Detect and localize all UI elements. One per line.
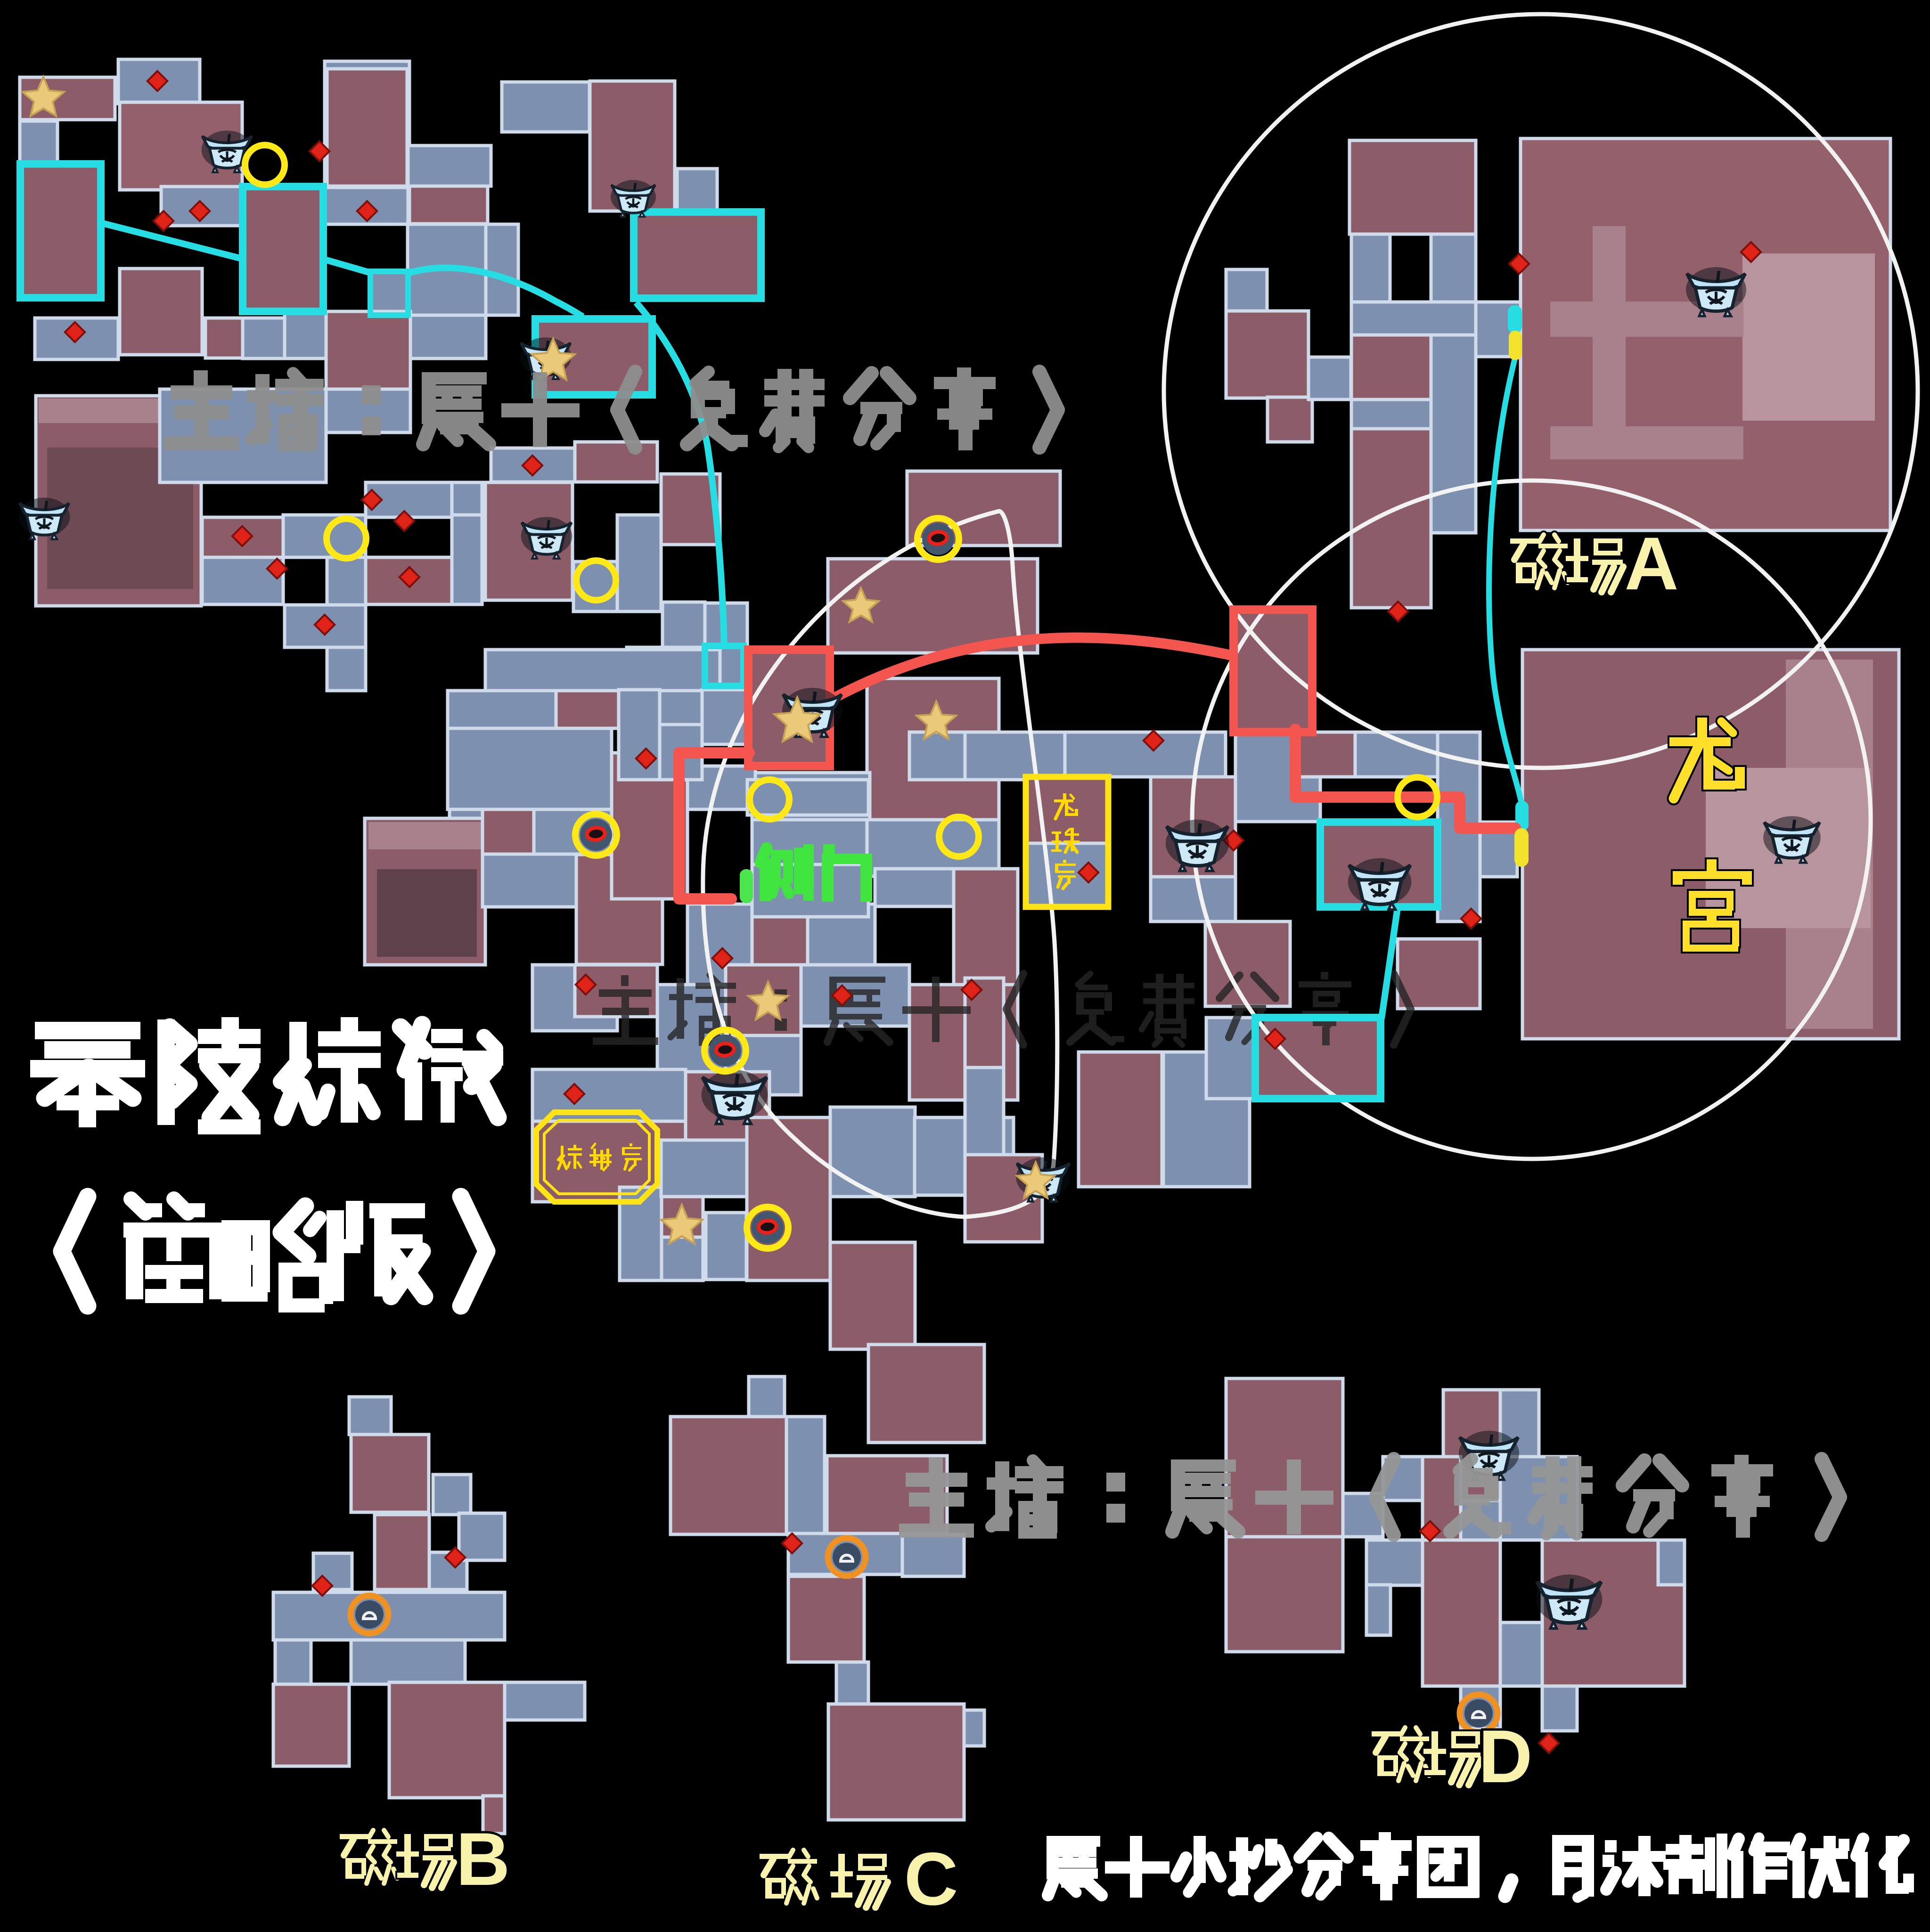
- svg-text:C: C: [904, 1837, 958, 1921]
- svg-text:B: B: [456, 1817, 510, 1901]
- svg-text:D: D: [1479, 1714, 1533, 1798]
- svg-text:A: A: [1625, 522, 1679, 605]
